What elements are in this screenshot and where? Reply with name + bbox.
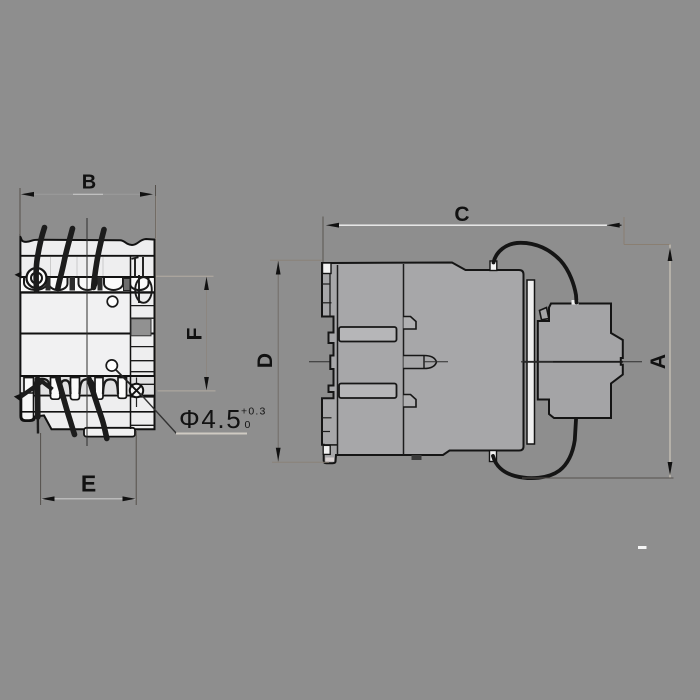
svg-text:D: D [254, 353, 277, 368]
svg-text:F: F [184, 327, 207, 340]
svg-text:+0.3: +0.3 [241, 406, 267, 418]
svg-text:0: 0 [245, 419, 251, 431]
svg-text:C: C [454, 203, 469, 226]
svg-text:B: B [82, 172, 96, 194]
svg-text:E: E [81, 471, 96, 497]
svg-text:A: A [647, 354, 670, 369]
svg-text:Φ4.5: Φ4.5 [179, 404, 242, 434]
